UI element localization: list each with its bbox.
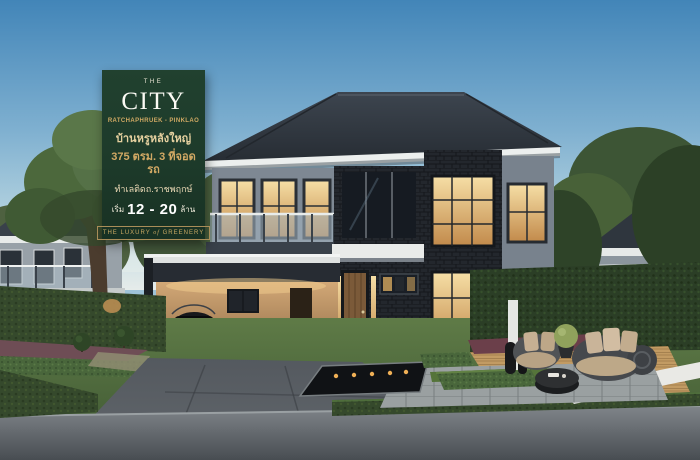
brand-the: THE bbox=[144, 79, 164, 85]
price-prefix: เริ่ม bbox=[112, 203, 124, 216]
coffee-table bbox=[535, 368, 579, 394]
tagline-pre: THE LUXURY bbox=[103, 230, 151, 236]
banner-headline: บ้านหรูหลังใหญ่ bbox=[116, 133, 191, 146]
banner-specs: 375 ตรม. 3 ที่จอดรถ bbox=[106, 151, 201, 177]
banner-tagline: THE LUXURY of GREENERY bbox=[97, 226, 210, 240]
balcony bbox=[206, 214, 340, 254]
banner-location-line: ทำเลติดถ.ราชพฤกษ์ bbox=[115, 184, 193, 195]
price-unit: ล้าน bbox=[180, 203, 195, 216]
brand-location: RATCHAPHRUEK - PINKLAO bbox=[108, 118, 199, 124]
promo-banner[interactable]: THE CITY RATCHAPHRUEK - PINKLAO บ้านหรูห… bbox=[102, 70, 205, 240]
advertisement-image: THE CITY RATCHAPHRUEK - PINKLAO บ้านหรูห… bbox=[0, 0, 700, 460]
tagline-post: GREENERY bbox=[163, 230, 205, 236]
tagline-of: of bbox=[153, 230, 160, 236]
banner-price: เริ่ม 12 - 20 ล้าน bbox=[112, 201, 195, 218]
brand-city: CITY bbox=[121, 89, 185, 115]
price-range: 12 - 20 bbox=[127, 201, 177, 218]
